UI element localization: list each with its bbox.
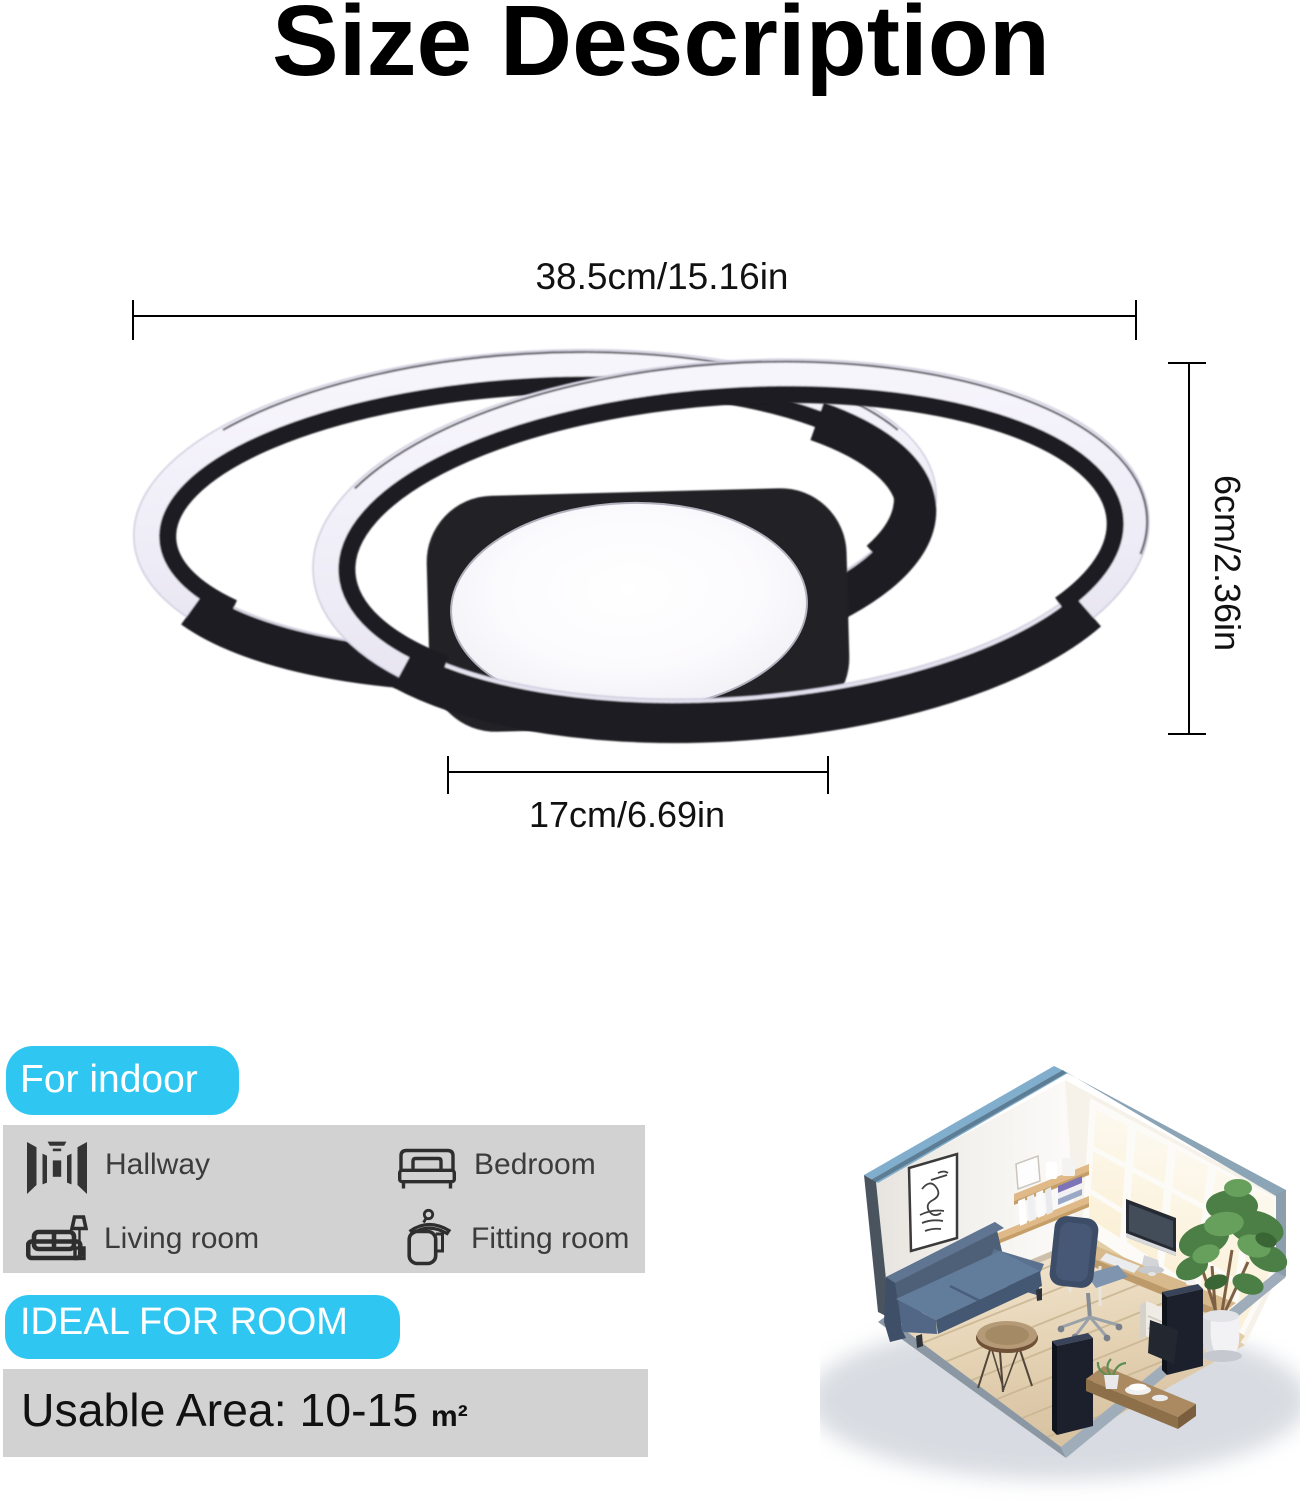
svg-text:38.5cm/15.16in: 38.5cm/15.16in: [535, 256, 788, 297]
svg-text:17cm/6.69in: 17cm/6.69in: [529, 794, 725, 835]
svg-text:6cm/2.36in: 6cm/2.36in: [1207, 475, 1248, 651]
